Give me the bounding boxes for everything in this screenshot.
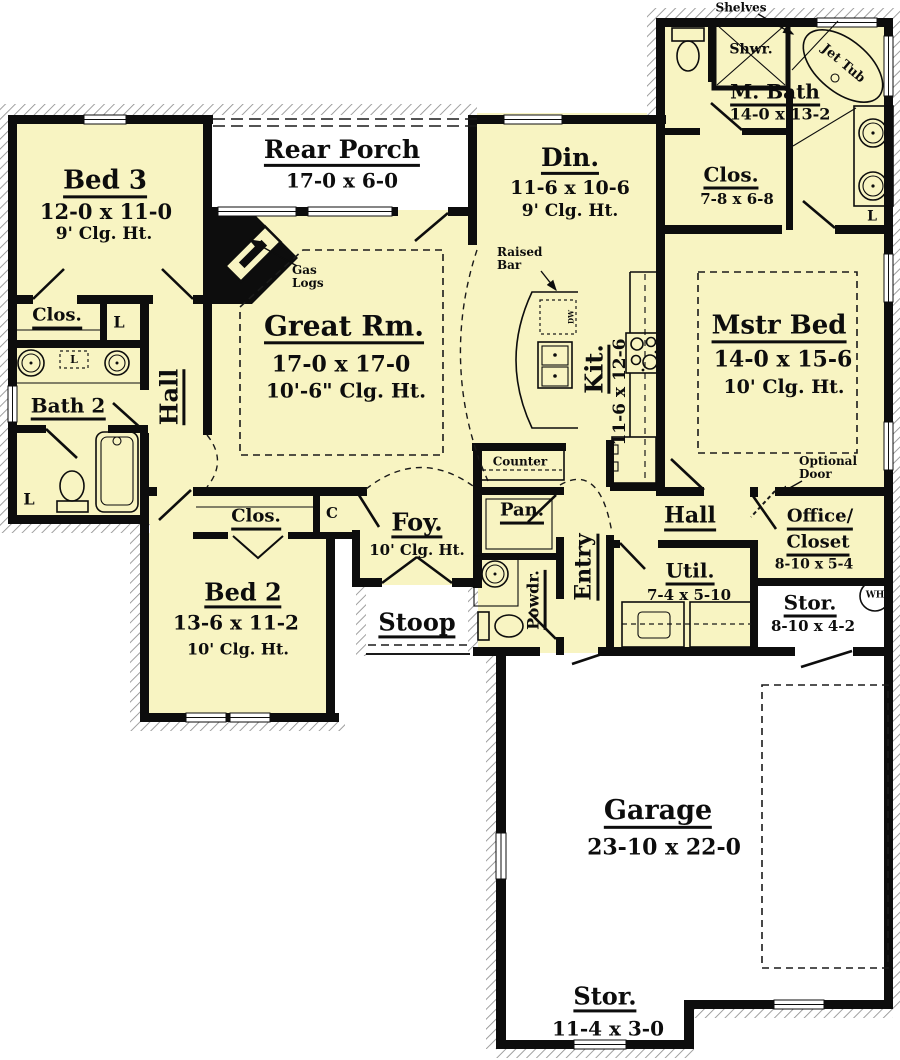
linen-label-4: L — [867, 210, 877, 225]
room-label-hall-left: Hall — [156, 369, 185, 425]
floor-plan-drawing — [0, 0, 900, 1060]
room-label-foyer: Foy. — [391, 509, 442, 538]
room-label-hall-right: Hall — [664, 504, 716, 531]
room-dims-bed2: 13-6 x 11-2 — [173, 613, 299, 634]
room-label-office-line1: Office/ — [787, 508, 853, 531]
room-dims-bed3: 12-0 x 11-0 — [40, 201, 172, 223]
counter-label: Counter — [493, 456, 548, 469]
room-clg-bed2: 10' Clg. Ht. — [187, 642, 289, 659]
room-label-dining: Din. — [541, 145, 599, 175]
room-dims-garage: 23-10 x 22-0 — [587, 836, 741, 859]
room-label-rear-porch: Rear Porch — [264, 137, 420, 167]
room-label-master-bed: Mstr Bed — [712, 312, 847, 343]
shower-label: Shwr. — [729, 43, 772, 58]
linen-label-3: L — [23, 492, 34, 509]
room-label-storage1: Stor. — [784, 593, 837, 618]
powder-sink-icon — [482, 561, 508, 587]
room-clg-bed3: 9' Clg. Ht. — [56, 226, 153, 244]
room-label-utility: Util. — [666, 561, 715, 586]
floor-plan: Bed 3 12-0 x 11-0 9' Clg. Ht. Rear Porch… — [0, 0, 900, 1060]
room-label-closet-bed2: Clos. — [231, 508, 281, 531]
room-clg-dining: 9' Clg. Ht. — [522, 203, 619, 221]
coat-closet-label: C — [326, 506, 338, 522]
room-label-pantry: Pan. — [500, 502, 544, 525]
raised-bar-label: Raised Bar — [497, 246, 553, 273]
room-dims-master-bed: 14-0 x 15-6 — [714, 348, 853, 371]
room-dims-office: 8-10 x 5-4 — [775, 558, 853, 573]
room-label-office-line2: Closet — [786, 534, 849, 557]
optional-door-label: Optional Door — [799, 455, 863, 482]
room-label-master-bath: M. Bath — [730, 82, 820, 107]
room-dims-kitchen: 11-6 x 12-6 — [612, 338, 630, 445]
room-clg-master-bed: 10' Clg. Ht. — [723, 378, 844, 398]
room-label-bed2: Bed 2 — [204, 579, 281, 608]
room-label-powder: Powdr. — [526, 570, 547, 630]
room-label-bed3: Bed 3 — [63, 167, 147, 198]
room-dims-master-bath: 14-0 x 13-2 — [730, 107, 831, 124]
room-dims-storage1: 8-10 x 4-2 — [771, 619, 855, 635]
room-clg-great-room: 10'-6" Clg. Ht. — [266, 381, 426, 402]
room-label-master-closet: Clos. — [703, 165, 758, 190]
room-label-kitchen: Kit. — [581, 344, 610, 393]
water-heater-label: WH — [866, 591, 885, 600]
room-dims-great-room: 17-0 x 17-0 — [272, 353, 411, 376]
room-label-entry: Entry — [572, 533, 599, 600]
room-label-stoop: Stoop — [378, 609, 455, 638]
room-label-storage2: Stor. — [573, 983, 636, 1012]
shelves-label: Shelves — [716, 2, 767, 15]
room-clg-foyer: 10' Clg. Ht. — [369, 543, 465, 559]
dishwasher-label: DW — [567, 310, 574, 324]
room-label-great-room: Great Rm. — [264, 311, 424, 344]
linen-label-2: L — [70, 354, 78, 366]
room-label-bath2: Bath 2 — [31, 396, 106, 421]
room-label-closet-left: Clos. — [32, 307, 82, 330]
gas-logs-label: Gas Logs — [292, 264, 336, 291]
linen-label-1: L — [113, 315, 124, 332]
room-dims-utility: 7-4 x 5-10 — [647, 588, 731, 604]
room-label-garage: Garage — [604, 797, 712, 829]
room-dims-master-closet: 7-8 x 6-8 — [700, 192, 774, 208]
room-dims-storage2: 11-4 x 3-0 — [552, 1019, 664, 1040]
room-dims-rear-porch: 17-0 x 6-0 — [286, 171, 398, 192]
room-dims-dining: 11-6 x 10-6 — [510, 179, 630, 199]
